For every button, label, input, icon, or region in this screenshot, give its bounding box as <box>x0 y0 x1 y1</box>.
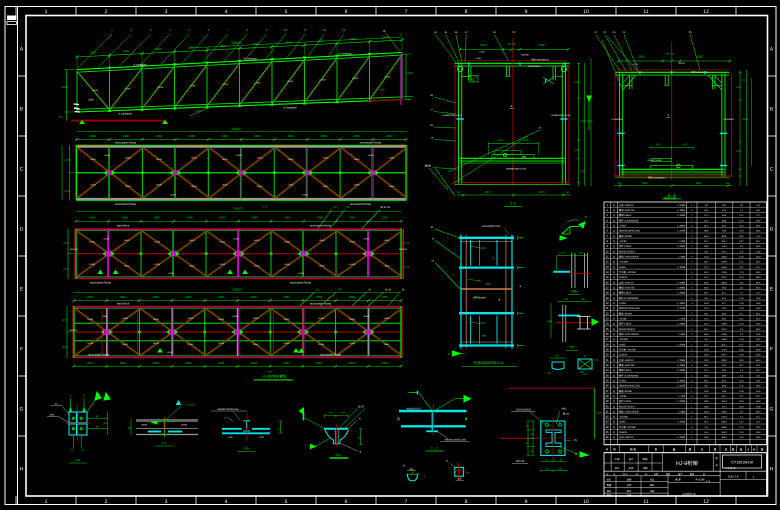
svg-text:3: 3 <box>150 28 152 32</box>
svg-text:192.2: 192.2 <box>721 276 727 279</box>
svg-text:L63X5: L63X5 <box>349 342 356 345</box>
svg-text:1:75: 1:75 <box>706 480 711 483</box>
svg-text:28 31: 28 31 <box>425 165 432 168</box>
svg-text:Q: Q <box>613 318 615 321</box>
svg-text:21: 21 <box>606 307 609 310</box>
svg-text:100: 100 <box>341 412 346 415</box>
svg-text:L63X5: L63X5 <box>188 317 195 320</box>
svg-text:12.6: 12.6 <box>739 338 744 341</box>
svg-text:30.1: 30.1 <box>704 312 709 315</box>
svg-text:33.0: 33.0 <box>704 359 709 362</box>
svg-text:44.3: 44.3 <box>704 323 709 326</box>
svg-text:122.2: 122.2 <box>721 328 727 331</box>
svg-text:槽钢 L63X5: 槽钢 L63X5 <box>619 291 632 295</box>
svg-text:1075: 1075 <box>497 139 503 142</box>
svg-text:L63X5: L63X5 <box>284 263 291 266</box>
svg-text:27.7: 27.7 <box>739 395 744 398</box>
svg-text:1: 1 <box>691 421 693 424</box>
svg-text:63.8: 63.8 <box>756 400 761 403</box>
svg-text:49.4: 49.4 <box>756 225 761 228</box>
svg-text:22.7: 22.7 <box>704 395 709 398</box>
svg-text:工程: 工程 <box>615 458 620 461</box>
svg-text:69.4: 69.4 <box>756 276 761 279</box>
svg-text:L63X5: L63X5 <box>384 265 391 268</box>
svg-text:32.7: 32.7 <box>756 343 761 346</box>
svg-text:王强: 王强 <box>627 494 632 497</box>
svg-text:37.9: 37.9 <box>739 405 744 408</box>
svg-text:L63X5: L63X5 <box>156 158 163 161</box>
svg-text:150: 150 <box>530 433 534 436</box>
svg-text:15: 15 <box>383 30 386 33</box>
svg-text:4.3: 4.3 <box>705 426 709 429</box>
svg-text:11: 11 <box>643 9 648 15</box>
svg-text:1500: 1500 <box>574 81 580 84</box>
svg-text:43.0: 43.0 <box>704 410 709 413</box>
svg-text:50X250: 50X250 <box>521 54 529 57</box>
svg-text:7: 7 <box>691 338 693 341</box>
svg-text:重: 重 <box>732 448 735 452</box>
svg-text:(35): (35) <box>466 472 470 475</box>
svg-text:42: 42 <box>606 416 609 419</box>
svg-text:L75X6: L75X6 <box>222 83 229 86</box>
svg-text:166.6: 166.6 <box>721 266 727 269</box>
svg-text:230: 230 <box>558 468 563 471</box>
svg-text:161.1: 161.1 <box>721 343 727 346</box>
svg-text:A3: A3 <box>333 206 337 209</box>
svg-text:HJ-9桁架布置图: HJ-9桁架布置图 <box>262 374 287 378</box>
svg-text:31.4: 31.4 <box>704 225 709 228</box>
svg-text:52.7: 52.7 <box>704 240 709 243</box>
svg-text:41.4: 41.4 <box>704 276 709 279</box>
svg-text:L75X6: L75X6 <box>157 86 164 89</box>
svg-text:10 10: 10 10 <box>559 252 565 255</box>
svg-text:2904: 2904 <box>283 361 290 365</box>
svg-text:2: 2 <box>105 9 108 15</box>
svg-text:182.2: 182.2 <box>721 431 727 434</box>
svg-text:36: 36 <box>455 31 458 34</box>
svg-text:L63X5: L63X5 <box>284 318 291 321</box>
svg-text:32.6: 32.6 <box>739 235 744 238</box>
svg-text:43.8: 43.8 <box>756 349 761 352</box>
svg-text:L63X5: L63X5 <box>384 317 391 320</box>
svg-text:7: 7 <box>691 214 693 217</box>
svg-text:1: 1 <box>511 104 513 108</box>
svg-text:L63X5: L63X5 <box>323 157 330 160</box>
svg-text:-160X10(800X750X8): -160X10(800X750X8) <box>309 302 331 305</box>
svg-text:L=450: L=450 <box>679 240 686 243</box>
svg-text:2360: 2360 <box>386 134 393 138</box>
svg-text:比例: 比例 <box>654 473 659 476</box>
svg-text:单: 单 <box>725 448 728 452</box>
svg-text:-100X100X20: -100X100X20 <box>515 409 531 412</box>
svg-text:88.8: 88.8 <box>722 235 727 238</box>
svg-text:Q: Q <box>613 219 615 222</box>
svg-text:25: 25 <box>689 31 692 34</box>
svg-text:序: 序 <box>606 448 609 452</box>
svg-text:L=450: L=450 <box>679 318 686 321</box>
svg-text:L=800: L=800 <box>679 333 686 336</box>
svg-text:设计: 设计 <box>607 478 612 481</box>
svg-text:L63X5: L63X5 <box>349 263 356 266</box>
svg-text:800X750X8: 800X750X8 <box>117 302 130 305</box>
svg-text:2.0: 2.0 <box>740 204 744 207</box>
svg-text:65.0: 65.0 <box>756 359 761 362</box>
svg-text:22.6: 22.6 <box>739 390 744 393</box>
svg-text:2.6: 2.6 <box>740 287 744 290</box>
svg-text:2360: 2360 <box>252 216 259 220</box>
svg-text:L63X5: L63X5 <box>323 185 330 188</box>
svg-text:L=2360: L=2360 <box>677 245 685 248</box>
svg-text:P4 比例: P4 比例 <box>696 478 705 482</box>
svg-text:+4.20: +4.20 <box>479 50 485 53</box>
svg-text:31.1: 31.1 <box>722 292 727 295</box>
svg-text:17.3: 17.3 <box>739 219 744 222</box>
svg-text:图号: 图号 <box>690 473 695 476</box>
svg-text:10: 10 <box>606 473 609 476</box>
svg-text:2360: 2360 <box>156 134 163 138</box>
svg-text:52.2: 52.2 <box>722 379 727 382</box>
svg-text:12.7: 12.7 <box>704 343 709 346</box>
svg-text:竖杆 L50X5: 竖杆 L50X5 <box>619 244 632 248</box>
svg-text:12.2: 12.2 <box>739 421 744 424</box>
svg-text:17.9: 17.9 <box>739 302 744 305</box>
svg-text:号: 号 <box>613 448 616 452</box>
svg-text:135.5: 135.5 <box>721 333 727 336</box>
svg-text:8.5: 8.5 <box>705 385 709 388</box>
svg-text:A-A: A-A <box>268 370 273 373</box>
svg-text:1: 1 <box>691 359 693 362</box>
svg-text:Q: Q <box>613 354 615 357</box>
svg-text:30.5: 30.5 <box>756 385 761 388</box>
svg-text:d-d: d-d <box>336 453 341 457</box>
svg-text:12.8: 12.8 <box>739 297 744 300</box>
svg-text:1: 1 <box>691 343 693 346</box>
svg-text:1075: 1075 <box>523 139 529 142</box>
svg-text:32.2: 32.2 <box>739 318 744 321</box>
svg-text:数: 数 <box>655 448 658 452</box>
svg-text:27.5: 27.5 <box>739 230 744 233</box>
svg-text:38.5: 38.5 <box>704 230 709 233</box>
svg-text:109.9: 109.9 <box>721 323 727 326</box>
svg-text:陈红: 陈红 <box>627 490 632 493</box>
svg-text:50.1: 50.1 <box>704 416 709 419</box>
svg-text:6: 6 <box>606 230 608 233</box>
svg-text:节点板 -10X160: 节点板 -10X160 <box>619 348 637 352</box>
svg-text:14.9: 14.9 <box>756 250 761 253</box>
svg-text:34.3: 34.3 <box>704 271 709 274</box>
svg-text:9: 9 <box>525 499 528 505</box>
svg-text:-8: -8 <box>359 450 362 453</box>
svg-text:-160X10(800X750X8): -160X10(800X750X8) <box>114 203 136 206</box>
svg-text:18.5: 18.5 <box>704 436 709 439</box>
svg-text:61.4: 61.4 <box>704 379 709 382</box>
svg-text:28.3: 28.3 <box>756 426 761 429</box>
svg-text:1075: 1075 <box>656 143 662 146</box>
svg-text:200: 200 <box>581 298 586 301</box>
svg-text:34.9: 34.9 <box>756 302 761 305</box>
svg-text:2964: 2964 <box>153 361 160 365</box>
svg-text:图: 图 <box>716 457 718 460</box>
svg-text:27.5: 27.5 <box>739 436 744 439</box>
svg-text:2360: 2360 <box>122 216 129 220</box>
svg-text:1200: 1200 <box>736 150 742 153</box>
svg-text:82.7: 82.7 <box>756 240 761 243</box>
svg-text:14: 14 <box>606 271 609 274</box>
svg-text:上弦 -160X10: 上弦 -160X10 <box>619 204 634 207</box>
svg-text:Q: Q <box>613 214 615 217</box>
svg-text:Q: Q <box>613 276 615 279</box>
svg-text:26: 26 <box>430 94 433 97</box>
svg-text:7: 7 <box>691 245 693 248</box>
svg-text:2360: 2360 <box>254 134 261 138</box>
svg-text:900: 900 <box>581 170 586 173</box>
svg-text:2360: 2360 <box>123 134 130 138</box>
svg-text:2: 2 <box>130 28 132 32</box>
svg-text:L63X5: L63X5 <box>389 157 396 160</box>
svg-text:L63X5: L63X5 <box>90 158 97 161</box>
svg-text:-160X10(800X750X8): -160X10(800X750X8) <box>114 142 136 145</box>
svg-text:1: 1 <box>45 499 48 505</box>
svg-text:12.2: 12.2 <box>739 214 744 217</box>
svg-text:10: 10 <box>432 238 435 241</box>
svg-text:37: 37 <box>606 390 609 393</box>
svg-text:-12X180: -12X180 <box>619 261 629 264</box>
svg-text:37.7: 37.7 <box>739 240 744 243</box>
svg-text:槽钢 L63X5: 槽钢 L63X5 <box>619 213 632 217</box>
svg-text:57.2: 57.2 <box>704 421 709 424</box>
svg-text:40.1: 40.1 <box>704 364 709 367</box>
svg-text:-8: -8 <box>358 418 361 421</box>
svg-text:L=2904: L=2904 <box>677 225 685 228</box>
svg-text:全: 全 <box>753 448 756 452</box>
svg-text:36.6: 36.6 <box>722 214 727 217</box>
svg-text:7.5: 7.5 <box>740 333 744 336</box>
svg-text:37.2: 37.2 <box>704 318 709 321</box>
svg-text:2360: 2360 <box>349 216 356 220</box>
svg-text:L63X5: L63X5 <box>125 157 132 160</box>
svg-text:-8X60: -8X60 <box>485 283 492 286</box>
svg-text:L63X5: L63X5 <box>154 263 161 266</box>
svg-text:5: 5 <box>285 9 288 15</box>
svg-text:-8: -8 <box>519 285 522 288</box>
svg-text:10.1: 10.1 <box>704 209 709 212</box>
svg-text:38 37: 38 37 <box>358 405 365 408</box>
svg-text:L=800: L=800 <box>679 256 686 259</box>
svg-text:Q: Q <box>613 323 615 326</box>
svg-text:11: 11 <box>606 256 609 259</box>
svg-text:78.8: 78.8 <box>722 390 727 393</box>
svg-text:2475: 2475 <box>404 242 410 245</box>
svg-text:169.9: 169.9 <box>721 426 727 429</box>
svg-text:54.3: 54.3 <box>704 374 709 377</box>
svg-text:量: 量 <box>673 448 676 452</box>
svg-text:HN200X100X5.5X8: HN200X100X5.5X8 <box>619 385 641 388</box>
svg-text:L63X5: L63X5 <box>389 185 396 188</box>
svg-text:480: 480 <box>580 371 585 374</box>
svg-text:38: 38 <box>584 216 587 219</box>
svg-text:Q: Q <box>613 312 615 315</box>
svg-text:179.9: 179.9 <box>721 271 727 274</box>
svg-text:L=2360: L=2360 <box>677 400 685 403</box>
svg-text:x1: x1 <box>446 460 449 463</box>
svg-text:100: 100 <box>399 33 403 36</box>
svg-text:E: E <box>770 287 774 293</box>
svg-text:W150X75-5-7: W150X75-5-7 <box>407 407 422 410</box>
svg-text:3050: 3050 <box>62 86 68 89</box>
svg-text:Q: Q <box>613 250 615 253</box>
svg-text:7: 7 <box>691 416 693 419</box>
svg-text:2360: 2360 <box>123 49 130 53</box>
svg-text:16.9: 16.9 <box>704 302 709 305</box>
svg-text:110: 110 <box>575 219 579 222</box>
svg-text:D: D <box>20 227 24 233</box>
svg-text:800X750X8: 800X750X8 <box>117 225 130 228</box>
svg-text:1: 1 <box>691 266 693 269</box>
svg-text:7: 7 <box>606 235 608 238</box>
svg-text:39: 39 <box>606 400 609 403</box>
svg-text:4: 4 <box>691 302 693 305</box>
svg-text:号: 号 <box>716 464 719 467</box>
svg-text:L50X5: L50X5 <box>102 315 109 318</box>
svg-text:24: 24 <box>623 31 626 34</box>
svg-text:预埋-450X300X14: 预埋-450X300X14 <box>648 177 667 180</box>
svg-text:21.6: 21.6 <box>756 338 761 341</box>
svg-text:校对: 校对 <box>615 466 620 470</box>
svg-text:52.7: 52.7 <box>756 395 761 398</box>
svg-text:7.3: 7.3 <box>740 374 744 377</box>
svg-text:Q: Q <box>613 416 615 419</box>
svg-text:91.1: 91.1 <box>722 395 727 398</box>
svg-text:L63X5: L63X5 <box>254 265 261 268</box>
svg-text:10.5: 10.5 <box>756 333 761 336</box>
svg-text:L50X5: L50X5 <box>167 351 174 354</box>
svg-text:2L100X80X8: 2L100X80X8 <box>283 106 297 109</box>
svg-text:斜杆 2L100X80X8: 斜杆 2L100X80X8 <box>619 218 639 222</box>
svg-text:总: 总 <box>701 448 704 452</box>
svg-text:7: 7 <box>691 400 693 403</box>
svg-text:2013: 2013 <box>623 473 629 476</box>
svg-text:节点板 -10X160: 节点板 -10X160 <box>619 425 637 429</box>
svg-text:15: 15 <box>606 276 609 279</box>
svg-text:47.2: 47.2 <box>704 369 709 372</box>
svg-text:38.3: 38.3 <box>756 219 761 222</box>
svg-text:D: D <box>770 227 774 233</box>
svg-text:23680: 23680 <box>231 127 240 131</box>
svg-text:腹板 -8X160: 腹板 -8X160 <box>619 234 633 238</box>
svg-text:7.1: 7.1 <box>740 416 744 419</box>
svg-text:62.2: 62.2 <box>722 225 727 228</box>
svg-text:8.3: 8.3 <box>757 374 761 377</box>
svg-text:1: 1 <box>691 436 693 439</box>
svg-text:30: 30 <box>645 473 648 476</box>
svg-text:3: 3 <box>165 9 168 15</box>
svg-text:审 定: 审 定 <box>675 478 681 482</box>
svg-text:Q: Q <box>613 240 615 243</box>
svg-text:3.0: 3.0 <box>705 204 709 207</box>
svg-text:2360: 2360 <box>284 216 291 220</box>
svg-text:图别: 图别 <box>666 473 670 476</box>
svg-text:205.5: 205.5 <box>721 281 727 284</box>
svg-text:37.3: 37.3 <box>739 323 744 326</box>
svg-text:27: 27 <box>606 338 609 341</box>
svg-text:15: 15 <box>69 395 72 398</box>
svg-text:A2: A2 <box>346 206 350 209</box>
svg-text:76.1: 76.1 <box>756 364 761 367</box>
svg-text:28: 28 <box>430 124 433 127</box>
svg-text:17.5: 17.5 <box>739 385 744 388</box>
svg-text:1: 1 <box>667 113 669 117</box>
svg-text:32: 32 <box>430 226 433 229</box>
svg-text:36: 36 <box>606 385 609 388</box>
svg-text:59.8: 59.8 <box>704 245 709 248</box>
svg-text:8: 8 <box>465 9 468 15</box>
svg-text:38: 38 <box>606 395 609 398</box>
svg-text:12.7: 12.7 <box>756 292 761 295</box>
svg-text:47.2: 47.2 <box>756 266 761 269</box>
svg-text:1-1: 1-1 <box>510 201 517 206</box>
svg-text:Q: Q <box>613 385 615 388</box>
svg-text:制图: 制图 <box>643 458 648 461</box>
svg-text:7: 7 <box>691 354 693 357</box>
svg-text:L63X5: L63X5 <box>384 343 391 346</box>
svg-text:≠80: ≠80 <box>477 280 482 283</box>
svg-text:15.6: 15.6 <box>704 390 709 393</box>
svg-text:240: 240 <box>547 372 552 375</box>
svg-text:22.8: 22.8 <box>739 349 744 352</box>
svg-text:L50X5: L50X5 <box>104 154 111 157</box>
svg-text:2L100X80X8: 2L100X80X8 <box>338 53 352 56</box>
svg-text:2904: 2904 <box>218 361 225 365</box>
svg-text:Q: Q <box>613 379 615 382</box>
svg-text:45: 45 <box>71 449 74 452</box>
svg-text:75.5: 75.5 <box>722 230 727 233</box>
svg-text:70.0: 70.0 <box>722 307 727 310</box>
svg-text:87.2: 87.2 <box>756 369 761 372</box>
svg-text:2964: 2964 <box>316 361 323 365</box>
svg-text:L=2964: L=2964 <box>677 209 685 212</box>
svg-text:2256: 2256 <box>407 72 413 75</box>
svg-text:36.9: 36.9 <box>704 405 709 408</box>
svg-text:M22: M22 <box>50 414 55 417</box>
svg-text:Q: Q <box>613 364 615 367</box>
svg-text:30: 30 <box>606 354 609 357</box>
svg-text:29: 29 <box>606 349 609 352</box>
svg-text:Q: Q <box>613 281 615 284</box>
svg-text:节点板 -10X160: 节点板 -10X160 <box>619 270 637 274</box>
svg-text:127.7: 127.7 <box>721 250 727 253</box>
svg-text:L63X5: L63X5 <box>218 318 225 321</box>
svg-text:56.1: 56.1 <box>756 312 761 315</box>
svg-text:A1加长16: A1加长16 <box>682 492 696 496</box>
svg-text:24.3: 24.3 <box>704 219 709 222</box>
svg-text:L50X5: L50X5 <box>236 154 243 157</box>
svg-text:Q: Q <box>613 297 615 300</box>
svg-text:施工: 施工 <box>678 473 683 476</box>
svg-text:L75X6: L75X6 <box>384 76 391 79</box>
svg-text:A3: A3 <box>338 288 342 291</box>
svg-text:93.8: 93.8 <box>756 245 761 248</box>
svg-text:45: 45 <box>606 431 609 434</box>
svg-text:23: 23 <box>613 31 616 34</box>
svg-text:+4.00: +4.00 <box>475 57 481 60</box>
svg-text:L75X6: L75X6 <box>619 379 627 382</box>
svg-text:L50X5: L50X5 <box>141 423 148 426</box>
svg-text:23.8: 23.8 <box>756 297 761 300</box>
svg-text:4: 4 <box>691 287 693 290</box>
svg-text:15: 15 <box>83 395 86 398</box>
svg-text:28 32: 28 32 <box>385 288 392 291</box>
svg-text:L75X6: L75X6 <box>124 88 131 91</box>
